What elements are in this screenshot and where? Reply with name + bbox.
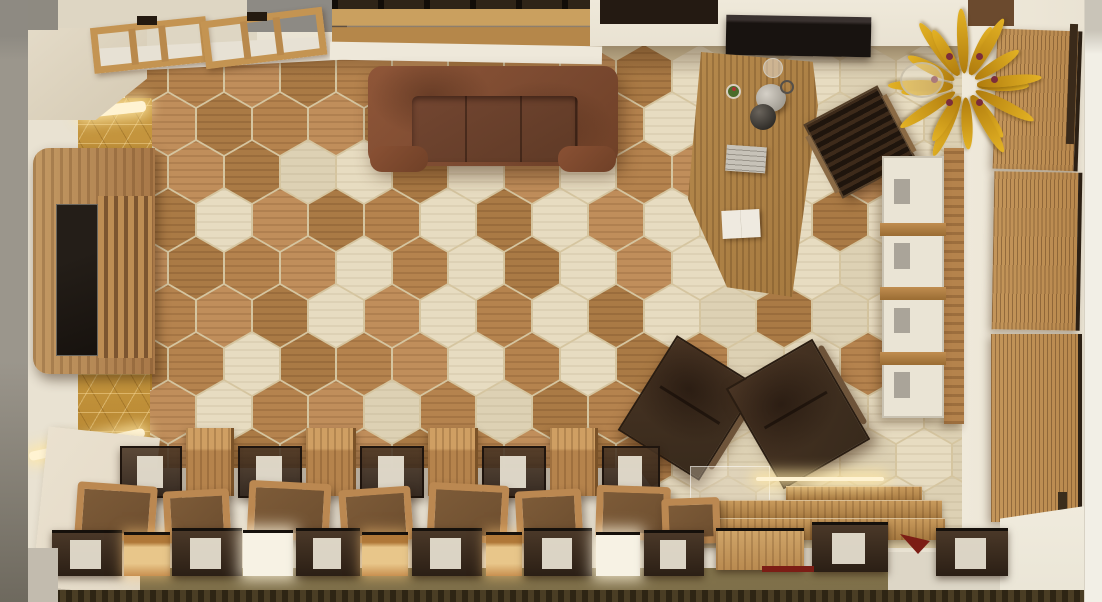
display-card [190, 538, 221, 569]
floor-hex-tile [197, 189, 251, 251]
floor-hex-tile [393, 333, 447, 395]
fern-berry [991, 76, 998, 83]
open-book [721, 209, 760, 239]
black-wall-shelf [726, 15, 872, 58]
chair-seam [764, 391, 829, 430]
shelf-board [880, 287, 946, 300]
glass-cup [763, 58, 783, 78]
white-floor-corner [1000, 505, 1092, 602]
right-white-wall-strip [1084, 0, 1102, 602]
floor-hex-tile [505, 429, 559, 491]
open-wood-crate [427, 482, 510, 544]
floor-hex-tile [477, 477, 531, 539]
shelf-product [894, 308, 909, 334]
floor-hex-tile [169, 141, 223, 203]
floor-hex-tile [169, 237, 223, 299]
floor-hex-tile [897, 429, 951, 491]
floor-hex-tile [421, 189, 475, 251]
floor-hex-tile [365, 189, 419, 251]
wood-slat-panel [98, 196, 152, 358]
floor-hex-tile [225, 237, 279, 299]
floor-hex-tile [533, 285, 587, 347]
interior-render [0, 0, 1102, 602]
floor-hex-tile [253, 477, 307, 539]
floor-hex-tile [253, 381, 307, 443]
floor-hex-tile [561, 333, 615, 395]
floor-hex-tile [393, 429, 447, 491]
display-card [660, 540, 686, 569]
shelf-product [894, 372, 909, 398]
floor-hex-tile [169, 429, 223, 491]
floor-hex-tile [477, 381, 531, 443]
floor-led-line [756, 477, 884, 481]
floor-hex-tile [253, 189, 307, 251]
floor-hex-tile [197, 477, 251, 539]
sofa-arm-right [558, 146, 616, 172]
floor-hex-tile [561, 429, 615, 491]
floor-hex-tile [253, 285, 307, 347]
floor-hex-tile [197, 381, 251, 443]
floor-hex-tile [589, 285, 643, 347]
floor-hex-tile [309, 477, 363, 539]
floor-hex-tile [337, 429, 391, 491]
bench-rail [332, 0, 590, 9]
floor-hex-tile [197, 285, 251, 347]
book-stack [725, 145, 767, 174]
floor-hex-tile [421, 477, 475, 539]
floor-hex-tile [309, 189, 363, 251]
floor-hex-tile [449, 333, 503, 395]
floor-hex-tile [393, 237, 447, 299]
floor-hex-tile [449, 237, 503, 299]
floor-hex-tile [365, 477, 419, 539]
floor-hex-tile [477, 285, 531, 347]
floor-hex-tile [533, 381, 587, 443]
left-gray-wall-strip [0, 0, 28, 602]
display-shelf-unit [882, 156, 944, 418]
floor-hex-tile [253, 93, 307, 155]
shelf-product [894, 179, 909, 205]
floor-hex-tile [365, 285, 419, 347]
dark-vase [750, 104, 776, 130]
floor-hex-tile [281, 333, 335, 395]
display-card [542, 538, 572, 569]
floor-hex-tile [589, 189, 643, 251]
open-wood-crate [163, 488, 232, 543]
dark-hardware-block [137, 16, 157, 25]
floor-hex-tile [337, 237, 391, 299]
red-accent-strip [762, 566, 814, 572]
floor-hex-tile [309, 285, 363, 347]
floor-hex-tile [617, 237, 671, 299]
floor-hex-tile [309, 381, 363, 443]
floor-hex-tile [309, 93, 363, 155]
shelf-board [880, 223, 946, 236]
floor-hex-tile [813, 477, 867, 539]
floor-hex-tile [505, 333, 559, 395]
floor-hex-tile [533, 189, 587, 251]
cactus-pot [726, 84, 741, 99]
fern-berry [946, 99, 953, 106]
kettle-handle [780, 80, 794, 94]
dark-ceiling-beam [600, 0, 718, 24]
chair-seam [660, 385, 721, 425]
floor-hex-tile [505, 237, 559, 299]
glass-plant-bowl [900, 62, 944, 98]
floor-hex-tile [281, 429, 335, 491]
floor-hex-tile [225, 429, 279, 491]
floor-hex-tile [421, 381, 475, 443]
sofa-arm-left [370, 146, 428, 172]
floor-hex-tile [477, 189, 531, 251]
floor-hex-tile [589, 477, 643, 539]
floor-hex-tile [225, 141, 279, 203]
floor-hex-tile [421, 285, 475, 347]
floor-hex-tile [617, 141, 671, 203]
floor-hex-tile [645, 93, 699, 155]
shelf-board [880, 352, 946, 365]
floor-hex-tile [645, 285, 699, 347]
floor-hex-tile [869, 477, 923, 539]
floor-hex-tile [561, 237, 615, 299]
floor-hex-tile [813, 189, 867, 251]
floor-hex-tile [365, 381, 419, 443]
floor-hex-tile [281, 141, 335, 203]
floor-hex-tile [281, 237, 335, 299]
floor-hex-tile [169, 333, 223, 395]
bottom-dark-band [0, 590, 1102, 602]
open-wood-crate [247, 480, 332, 542]
open-wood-crate [515, 488, 584, 543]
floor-hex-tile [337, 333, 391, 395]
floor-hex-tile [449, 429, 503, 491]
tv-screen [56, 204, 98, 356]
floor-hex-tile [701, 285, 755, 347]
shelf-product [894, 243, 909, 269]
floor-hex-tile [617, 45, 671, 107]
display-card [313, 538, 341, 569]
open-wood-crate [338, 486, 414, 545]
floor-hex-tile [197, 93, 251, 155]
floor-hex-tile [813, 285, 867, 347]
display-shelf-rail [944, 148, 964, 424]
dark-hardware-block [247, 12, 267, 21]
floor-hex-tile [533, 477, 587, 539]
display-card [430, 538, 461, 569]
glass-display-cube [690, 466, 770, 508]
floor-hex-tile [225, 333, 279, 395]
sofa-seat-cushions [412, 96, 578, 162]
fern-berry [976, 99, 983, 106]
